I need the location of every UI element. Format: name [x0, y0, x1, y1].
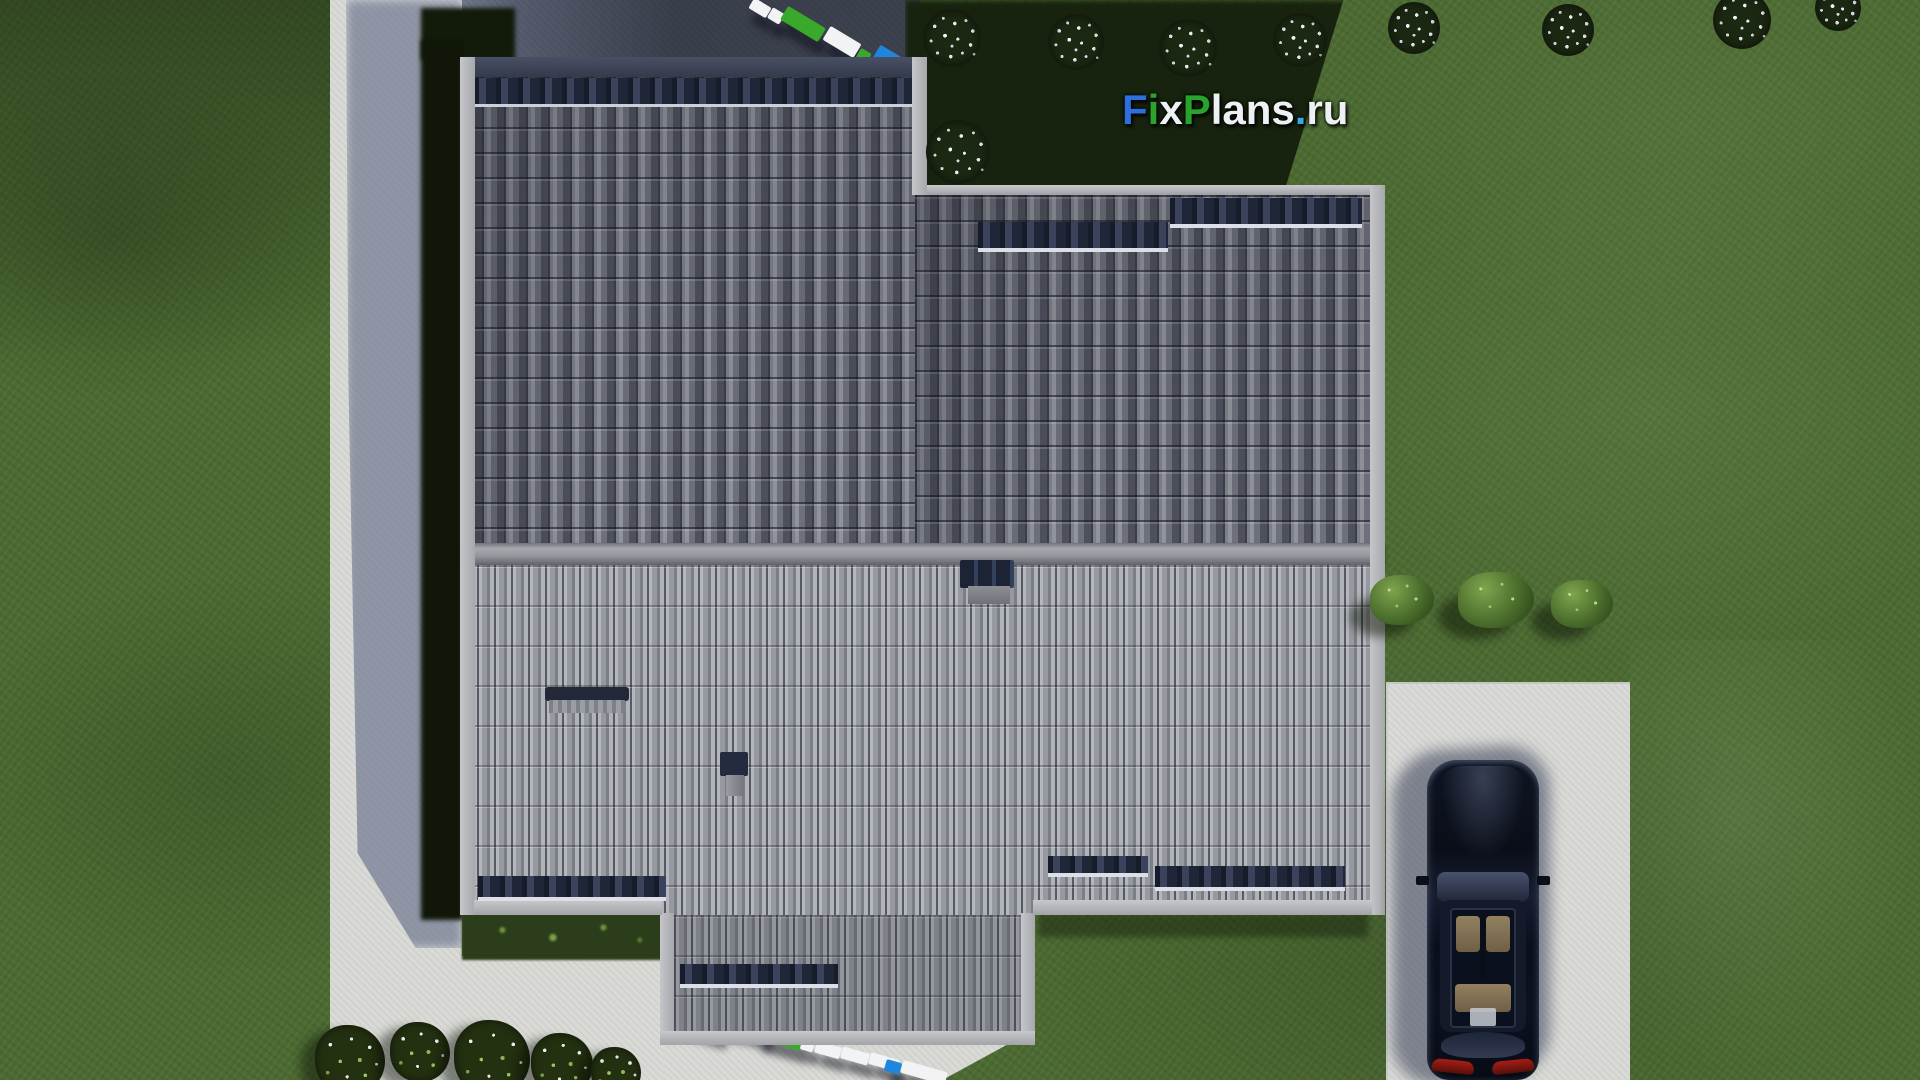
car-mirror-right: [1537, 876, 1550, 885]
hedge-bush: [390, 1022, 450, 1080]
roof-north-slope-right: [915, 185, 1385, 560]
porch-fascia-right: [1021, 913, 1035, 1033]
logo-segment: x: [1159, 86, 1182, 133]
roof-fascia-notch: [912, 57, 927, 195]
flowering-bush: [1273, 13, 1327, 67]
flowering-bush: [926, 120, 990, 184]
roof-tiles-upper-left: [460, 77, 915, 560]
roof-north-slope-left: [460, 57, 915, 560]
car-taillight-left: [1431, 1058, 1474, 1075]
green-bush: [1458, 572, 1534, 628]
flowering-bush: [1815, 0, 1861, 31]
car-taillight-right: [1491, 1058, 1534, 1075]
snow-guard: [1155, 866, 1345, 891]
snow-guard: [478, 876, 666, 901]
lawn-highlight-east: [1630, 640, 1920, 1080]
roof-eave-fascia-right: [1033, 900, 1372, 915]
garden-bed-west: [421, 40, 463, 920]
logo-segment: i: [1148, 86, 1160, 133]
flowering-bush: [1159, 19, 1217, 77]
roof-fascia-east: [1370, 185, 1385, 915]
snow-guard: [680, 964, 838, 988]
eave-shadow-southeast: [1038, 913, 1368, 937]
flowering-bush: [1542, 4, 1594, 56]
car-rear-deck-panel: [1470, 1008, 1496, 1026]
car-windshield: [1437, 872, 1529, 902]
chimney-base: [968, 586, 1010, 604]
snow-guard: [1048, 856, 1148, 877]
roof-eave-fascia-left: [474, 900, 662, 915]
roof-top-edge-band: [460, 57, 912, 77]
site-plan-render: FixPlans.ru: [0, 0, 1920, 1080]
snow-guard: [978, 222, 1168, 252]
lawn-shade-topleft: [0, 0, 330, 420]
planting-strip-south: [462, 910, 664, 960]
logo-segment: P: [1183, 86, 1211, 133]
snow-guard: [1170, 198, 1362, 228]
car-rear-window: [1441, 1032, 1525, 1058]
car-seat-front-right: [1486, 916, 1510, 952]
roof-dark-tile-row: [474, 78, 912, 107]
car-center-console: [1480, 918, 1486, 978]
logo-segment: .: [1295, 86, 1307, 133]
porch-fascia-left: [660, 913, 674, 1033]
flowering-bush: [1048, 14, 1104, 70]
roof-south-slope: [460, 565, 1385, 915]
car-seat-front-left: [1456, 916, 1480, 952]
brand-logo: FixPlans.ru: [1122, 86, 1348, 134]
flowering-bush: [1713, 0, 1771, 49]
car-mirror-left: [1416, 876, 1429, 885]
logo-segment: lans: [1211, 86, 1295, 133]
porch-fascia-bottom: [660, 1031, 1035, 1045]
roof-vent: [720, 752, 748, 776]
logo-segment: ru: [1306, 86, 1348, 133]
roof-ridge: [460, 543, 1385, 565]
car-hood: [1437, 766, 1529, 866]
roof-vent-pipe: [726, 775, 744, 796]
roof-top-fascia: [915, 185, 1385, 195]
green-bush: [1370, 575, 1434, 625]
snow-stopper-bracket: [549, 700, 625, 713]
roof-fascia-west: [460, 57, 475, 915]
flowering-bush: [923, 9, 981, 67]
black-car: [1427, 760, 1539, 1080]
flowering-bush: [1388, 2, 1440, 54]
green-bush: [1551, 580, 1613, 628]
logo-segment: F: [1122, 86, 1148, 133]
snow-stopper: [545, 687, 629, 701]
chimney: [960, 560, 1014, 588]
